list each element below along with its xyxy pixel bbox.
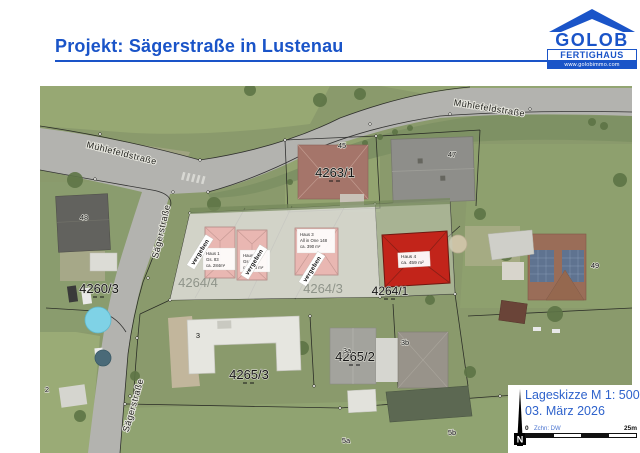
haus4-label-line1: Haus 4: [401, 254, 417, 260]
house-number-5b: 5b: [448, 428, 456, 437]
scale-zero: 0: [525, 425, 529, 432]
scale-bar: [525, 433, 637, 438]
house-number-3a: 3a: [343, 346, 352, 355]
planned-house-4-highlighted: Haus 4 ca. 459 m²: [382, 231, 450, 287]
haus1-label-line2: Gs. 83: [206, 257, 219, 262]
north-arrow-icon: N: [513, 388, 527, 452]
parcel-label-4264-3: 4264/3: [303, 281, 343, 296]
haus3-label-line1: Haus 3: [300, 232, 314, 237]
trampoline: [95, 350, 111, 366]
building-47: [391, 137, 475, 204]
house-number-49: 49: [591, 261, 599, 270]
haus1-label-line1: Haus 1: [206, 251, 220, 256]
haus4-label-line2: ca. 459 m²: [401, 260, 424, 266]
haus3-label-line3: ca. 390 m²: [300, 244, 321, 249]
scale-max: 25m: [624, 425, 637, 432]
building-48: [56, 194, 111, 253]
company-logo: GOLOB FERTIGHAUS www.golobimmo.com: [547, 7, 637, 69]
house-number-3b: 3b: [401, 338, 409, 347]
planned-house-1: Haus 1 Gs. 83 ca. 284m²: [203, 227, 235, 278]
legend-box: Lageskizze M 1: 500 03. März 2026 N 0 Zc…: [508, 385, 640, 453]
legend-date: 03. März 2026: [525, 404, 605, 418]
logo-name: GOLOB: [547, 33, 637, 48]
house-number-47: 47: [448, 150, 456, 159]
scale-credit: Zchn: DW: [534, 426, 561, 432]
pool: [85, 307, 111, 333]
house-number-3: 3: [196, 331, 200, 340]
parcel-label-4265-2: 4265/2: [335, 349, 375, 364]
parcel-label-4260-3: 4260/3: [79, 281, 119, 296]
house-number-5a: 5a: [342, 436, 351, 445]
parcel-label-4264-4: 4264/4: [178, 275, 218, 290]
parcel-label-4263-1: 4263/1: [315, 165, 355, 180]
house-number-45: 45: [338, 141, 346, 150]
svg-text:N: N: [517, 435, 524, 445]
page-title: Projekt: Sägerstraße in Lustenau: [55, 36, 343, 57]
logo-website: www.golobimmo.com: [547, 61, 637, 69]
house-number-48: 48: [80, 213, 88, 222]
haus3-label-line2: All in One 148: [300, 238, 328, 243]
building-49: [528, 234, 586, 300]
logo-division: FERTIGHAUS: [547, 49, 637, 61]
house-number-2: 2: [45, 385, 49, 394]
parcel-label-4265-3: 4265/3: [229, 367, 269, 382]
legend-title: Lageskizze M 1: 500: [525, 388, 640, 402]
parcel-label-4264-1: 4264/1: [372, 284, 409, 298]
scale-labels: 0 Zchn: DW 25m: [525, 424, 637, 433]
haus1-label-line3: ca. 284m²: [206, 263, 226, 268]
